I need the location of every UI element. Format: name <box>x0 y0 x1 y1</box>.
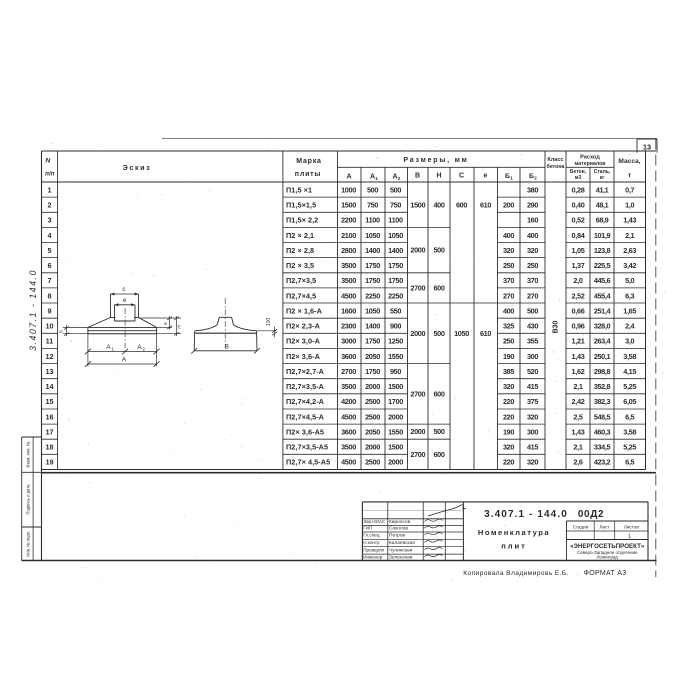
svg-text:Инв. № подл.: Инв. № подл. <box>26 531 31 557</box>
svg-text:П2× 2,3-А: П2× 2,3-А <box>286 322 321 331</box>
svg-text:1750: 1750 <box>388 261 403 270</box>
svg-text:1,21: 1,21 <box>571 337 584 346</box>
svg-text:270: 270 <box>503 291 514 300</box>
svg-text:Лист: Лист <box>600 525 611 530</box>
svg-text:4500: 4500 <box>341 291 356 300</box>
svg-text:1050: 1050 <box>454 329 469 338</box>
svg-text:600: 600 <box>433 284 444 293</box>
svg-text:328,0: 328,0 <box>594 322 611 331</box>
svg-text:Б: Б <box>163 322 168 325</box>
svg-text:270: 270 <box>527 291 538 300</box>
svg-text:500: 500 <box>433 329 444 338</box>
svg-text:Масса,: Масса, <box>618 158 640 165</box>
svg-text:3600: 3600 <box>341 352 356 361</box>
svg-text:0,96: 0,96 <box>571 322 584 331</box>
svg-text:3.407.1 - 144.0: 3.407.1 - 144.0 <box>28 269 38 351</box>
svg-text:6,05: 6,05 <box>623 397 636 406</box>
svg-text:500: 500 <box>433 427 444 436</box>
svg-text:2000: 2000 <box>388 458 403 467</box>
svg-text:П2,7×4,5: П2,7×4,5 <box>286 291 316 300</box>
svg-text:190: 190 <box>503 427 514 436</box>
svg-text:2050: 2050 <box>365 427 380 436</box>
svg-text:П2,7×3,5-А: П2,7×3,5-А <box>286 382 325 391</box>
svg-text:Соколов: Соколов <box>389 526 408 532</box>
svg-text:320: 320 <box>527 412 538 421</box>
svg-text:3000: 3000 <box>341 337 356 346</box>
svg-text:П2,7×3,5-А5: П2,7×3,5-А5 <box>286 443 328 452</box>
svg-text:520: 520 <box>527 367 538 376</box>
svg-text:750: 750 <box>390 201 401 210</box>
svg-text:1400: 1400 <box>388 246 403 255</box>
svg-text:320: 320 <box>527 246 538 255</box>
svg-text:1700: 1700 <box>388 397 403 406</box>
svg-text:19: 19 <box>45 458 53 467</box>
svg-text:А: А <box>346 174 351 181</box>
svg-text:3,0: 3,0 <box>625 337 634 346</box>
svg-text:2300: 2300 <box>341 322 356 331</box>
svg-text:17: 17 <box>45 427 53 436</box>
svg-text:610: 610 <box>480 201 491 210</box>
svg-text:2,42: 2,42 <box>571 397 584 406</box>
svg-text:плит: плит <box>501 542 526 551</box>
svg-text:П2,7×4,5-А: П2,7×4,5-А <box>286 412 325 421</box>
svg-text:материалов: материалов <box>575 161 606 167</box>
svg-text:Зеленская: Зеленская <box>389 554 413 560</box>
svg-text:385: 385 <box>503 367 514 376</box>
svg-text:3600: 3600 <box>341 427 356 436</box>
svg-text:1500: 1500 <box>388 443 403 452</box>
svg-text:16: 16 <box>45 412 53 421</box>
svg-text:1100: 1100 <box>388 216 403 225</box>
svg-text:123,8: 123,8 <box>594 246 611 255</box>
svg-text:8: 8 <box>47 291 51 300</box>
svg-text:500: 500 <box>367 185 378 194</box>
svg-text:423,2: 423,2 <box>594 458 611 467</box>
svg-text:455,4: 455,4 <box>594 291 612 300</box>
svg-text:Класс: Класс <box>547 157 563 163</box>
svg-text:18: 18 <box>45 443 53 452</box>
svg-text:298,8: 298,8 <box>594 367 611 376</box>
svg-text:00Д2: 00Д2 <box>578 509 604 520</box>
svg-text:11: 11 <box>46 337 54 346</box>
svg-text:4500: 4500 <box>341 458 356 467</box>
svg-text:П2 × 1,6-А: П2 × 1,6-А <box>286 306 323 315</box>
svg-text:250: 250 <box>503 337 514 346</box>
svg-text:3: 3 <box>47 216 51 225</box>
svg-text:2000: 2000 <box>410 246 425 255</box>
svg-text:900: 900 <box>390 322 401 331</box>
svg-text:П2 × 2,8: П2 × 2,8 <box>286 246 314 255</box>
svg-text:1750: 1750 <box>388 276 403 285</box>
svg-text:п/п: п/п <box>45 171 54 178</box>
svg-text:4200: 4200 <box>341 397 356 406</box>
svg-text:220: 220 <box>503 397 514 406</box>
svg-text:Копировала Владимировь Е.Б.: Копировала Владимировь Е.Б. <box>463 570 569 577</box>
svg-text:1: 1 <box>628 534 631 540</box>
svg-text:2,52: 2,52 <box>571 291 584 300</box>
svg-text:В30: В30 <box>553 320 560 333</box>
svg-text:600: 600 <box>433 389 444 398</box>
svg-text:1750: 1750 <box>365 337 380 346</box>
svg-text:400: 400 <box>527 231 538 240</box>
svg-text:Ленинград: Ленинград <box>597 555 619 560</box>
svg-text:750: 750 <box>367 201 378 210</box>
svg-text:3500: 3500 <box>341 443 356 452</box>
svg-text:3,42: 3,42 <box>623 261 636 270</box>
svg-text:Н: Н <box>436 173 441 180</box>
svg-text:1400: 1400 <box>365 322 380 331</box>
svg-text:12: 12 <box>45 352 53 361</box>
svg-text:5: 5 <box>47 246 51 255</box>
svg-text:2050: 2050 <box>365 352 380 361</box>
svg-text:1: 1 <box>47 185 51 194</box>
svg-text:3500: 3500 <box>341 276 356 285</box>
svg-text:0,52: 0,52 <box>571 216 584 225</box>
svg-text:7: 7 <box>47 276 51 285</box>
svg-text:П2 × 2,1: П2 × 2,1 <box>286 231 314 240</box>
svg-text:2,5: 2,5 <box>573 412 582 421</box>
svg-text:250: 250 <box>527 261 538 270</box>
svg-text:300: 300 <box>527 427 538 436</box>
svg-text:251,4: 251,4 <box>594 306 612 315</box>
svg-text:13: 13 <box>45 367 53 376</box>
svg-text:1550: 1550 <box>388 427 403 436</box>
svg-text:Эскиз: Эскиз <box>123 163 152 172</box>
svg-text:1100: 1100 <box>365 216 380 225</box>
svg-text:950: 950 <box>390 367 401 376</box>
svg-text:1,43: 1,43 <box>623 216 636 225</box>
svg-text:100: 100 <box>266 318 272 327</box>
svg-text:325: 325 <box>503 322 514 331</box>
svg-text:Листов: Листов <box>624 525 639 530</box>
svg-text:15: 15 <box>45 397 53 406</box>
svg-text:415: 415 <box>527 443 538 452</box>
svg-text:1,05: 1,05 <box>571 246 584 255</box>
svg-text:2200: 2200 <box>341 216 356 225</box>
svg-text:2,4: 2,4 <box>625 322 635 331</box>
svg-text:2100: 2100 <box>341 231 356 240</box>
svg-text:Калаевская: Калаевская <box>389 540 415 546</box>
svg-text:Проверил: Проверил <box>363 547 384 552</box>
svg-text:2: 2 <box>534 176 537 181</box>
svg-text:415: 415 <box>527 382 538 391</box>
svg-text:плиты: плиты <box>295 171 321 178</box>
svg-text:320: 320 <box>503 246 514 255</box>
svg-text:500: 500 <box>390 185 401 194</box>
svg-text:2000: 2000 <box>388 412 403 421</box>
svg-text:Петров: Петров <box>389 533 405 539</box>
svg-text:Взам. инв. №: Взам. инв. № <box>26 441 31 467</box>
svg-text:Б: Б <box>59 330 64 333</box>
svg-text:9: 9 <box>47 306 51 315</box>
svg-text:610: 610 <box>480 329 491 338</box>
svg-text:548,5: 548,5 <box>594 412 611 421</box>
svg-text:бетона: бетона <box>547 163 565 170</box>
svg-text:382,3: 382,3 <box>594 397 611 406</box>
svg-text:Расход: Расход <box>580 155 600 161</box>
svg-text:400: 400 <box>503 231 514 240</box>
svg-text:400: 400 <box>503 306 514 315</box>
svg-text:1250: 1250 <box>388 337 403 346</box>
svg-text:445,6: 445,6 <box>594 276 611 285</box>
svg-text:4,15: 4,15 <box>623 367 636 376</box>
svg-text:В: В <box>225 343 229 350</box>
svg-text:2: 2 <box>398 176 401 181</box>
svg-text:Кирносов: Кирносов <box>389 519 411 525</box>
svg-text:П2× 3,6-А5: П2× 3,6-А5 <box>286 427 324 436</box>
svg-text:1,62: 1,62 <box>571 367 584 376</box>
svg-text:П2× 3,6-А: П2× 3,6-А <box>286 352 321 361</box>
svg-text:2250: 2250 <box>365 291 380 300</box>
svg-text:500: 500 <box>527 306 538 315</box>
svg-text:1600: 1600 <box>341 306 356 315</box>
svg-text:370: 370 <box>527 276 538 285</box>
svg-text:400: 400 <box>433 200 444 209</box>
svg-text:48,1: 48,1 <box>596 201 609 210</box>
svg-text:10: 10 <box>45 322 53 331</box>
svg-text:101,9: 101,9 <box>594 231 611 240</box>
svg-text:1: 1 <box>375 176 378 181</box>
svg-text:Номенклатура: Номенклатура <box>478 528 550 537</box>
svg-text:Чучинская: Чучинская <box>389 547 413 553</box>
svg-text:Гл.спец.: Гл.спец. <box>363 533 380 538</box>
svg-text:П1,5× 2,2: П1,5× 2,2 <box>286 216 318 225</box>
svg-text:190: 190 <box>503 352 514 361</box>
svg-text:370: 370 <box>503 276 514 285</box>
svg-text:1,0: 1,0 <box>625 201 634 210</box>
svg-text:2,0: 2,0 <box>573 276 582 285</box>
svg-text:320: 320 <box>527 458 538 467</box>
svg-text:2,1: 2,1 <box>573 443 582 452</box>
svg-text:380: 380 <box>527 185 538 194</box>
svg-text:1,37: 1,37 <box>571 261 584 270</box>
svg-text:1: 1 <box>510 176 513 181</box>
svg-text:1500: 1500 <box>341 201 356 210</box>
svg-text:0,66: 0,66 <box>571 306 584 315</box>
svg-text:2,1: 2,1 <box>573 382 582 391</box>
svg-text:2000: 2000 <box>365 443 380 452</box>
svg-text:220: 220 <box>503 458 514 467</box>
svg-text:1050: 1050 <box>388 231 403 240</box>
svg-text:3.407.1 - 144.0: 3.407.1 - 144.0 <box>484 509 568 520</box>
svg-text:1750: 1750 <box>365 367 380 376</box>
svg-text:290: 290 <box>527 201 538 210</box>
svg-text:6,3: 6,3 <box>625 291 634 300</box>
svg-text:300: 300 <box>527 352 538 361</box>
svg-text:Инженер: Инженер <box>363 554 383 559</box>
svg-text:2500: 2500 <box>365 458 380 467</box>
svg-text:П2× 3,0-А: П2× 3,0-А <box>286 337 321 346</box>
svg-text:2000: 2000 <box>410 329 425 338</box>
svg-text:550: 550 <box>390 306 401 315</box>
svg-text:68,9: 68,9 <box>596 216 609 225</box>
svg-text:200: 200 <box>503 201 514 210</box>
svg-text:1750: 1750 <box>365 261 380 270</box>
svg-text:375: 375 <box>527 397 538 406</box>
svg-text:Зав.НИАС: Зав.НИАС <box>363 519 386 524</box>
svg-text:П1,5×1,5: П1,5×1,5 <box>286 201 316 210</box>
svg-text:352,8: 352,8 <box>594 382 611 391</box>
svg-text:В: В <box>415 173 420 180</box>
svg-text:Подпись и дата: Подпись и дата <box>26 484 31 515</box>
svg-text:Н.контр: Н.контр <box>363 540 380 545</box>
svg-text:500: 500 <box>433 246 444 255</box>
svg-text:5,25: 5,25 <box>623 382 636 391</box>
svg-text:ГИП: ГИП <box>363 526 372 531</box>
svg-text:5,0: 5,0 <box>625 276 634 285</box>
svg-text:263,4: 263,4 <box>594 337 612 346</box>
svg-text:2700: 2700 <box>341 367 356 376</box>
svg-text:1550: 1550 <box>388 352 403 361</box>
svg-text:кг: кг <box>600 175 605 181</box>
svg-text:П1,5 ×1: П1,5 ×1 <box>286 185 312 194</box>
svg-text:1750: 1750 <box>365 276 380 285</box>
svg-text:160: 160 <box>527 216 538 225</box>
svg-text:334,5: 334,5 <box>594 443 611 452</box>
svg-text:13: 13 <box>643 143 651 152</box>
svg-text:1050: 1050 <box>365 231 380 240</box>
svg-text:1400: 1400 <box>365 246 380 255</box>
svg-text:2700: 2700 <box>410 389 425 398</box>
svg-text:С: С <box>459 173 464 180</box>
svg-text:2,1: 2,1 <box>625 231 634 240</box>
svg-text:355: 355 <box>527 337 538 346</box>
svg-text:0,40: 0,40 <box>571 201 584 210</box>
svg-text:2800: 2800 <box>341 246 356 255</box>
svg-text:6,5: 6,5 <box>625 458 634 467</box>
svg-text:250: 250 <box>503 261 514 270</box>
svg-text:0,84: 0,84 <box>571 231 585 240</box>
svg-text:600: 600 <box>456 201 467 210</box>
svg-text:П2,7×3,5: П2,7×3,5 <box>286 276 316 285</box>
svg-text:1500: 1500 <box>410 200 425 209</box>
svg-text:ФОРМАТ А3: ФОРМАТ А3 <box>584 570 627 577</box>
svg-text:2: 2 <box>47 201 51 210</box>
svg-text:3500: 3500 <box>341 261 356 270</box>
svg-text:430: 430 <box>527 322 538 331</box>
svg-text:е: е <box>484 173 488 180</box>
svg-text:2,6: 2,6 <box>573 458 582 467</box>
svg-text:14: 14 <box>45 382 54 391</box>
svg-text:0,28: 0,28 <box>571 185 584 194</box>
svg-text:1000: 1000 <box>341 185 356 194</box>
svg-text:«ЭНЕРГОСЕТЬПРОЕКТ»: «ЭНЕРГОСЕТЬПРОЕКТ» <box>570 543 645 550</box>
svg-text:1,43: 1,43 <box>571 352 584 361</box>
svg-text:250,1: 250,1 <box>594 352 611 361</box>
svg-text:6,5: 6,5 <box>625 412 634 421</box>
svg-text:6: 6 <box>47 261 51 270</box>
svg-text:Стадия: Стадия <box>573 525 589 530</box>
svg-text:3,58: 3,58 <box>623 352 636 361</box>
svg-text:600: 600 <box>433 450 444 459</box>
svg-text:Марка: Марка <box>296 158 321 165</box>
svg-text:2000: 2000 <box>410 427 425 436</box>
svg-text:320: 320 <box>503 443 514 452</box>
svg-text:5,25: 5,25 <box>623 443 636 452</box>
svg-text:2,63: 2,63 <box>623 246 636 255</box>
svg-text:П2,7× 4,5-А5: П2,7× 4,5-А5 <box>286 458 330 467</box>
svg-text:3,58: 3,58 <box>623 427 636 436</box>
svg-text:А: А <box>122 356 127 363</box>
svg-text:м3: м3 <box>575 175 582 181</box>
svg-text:П2,7×4,2-А: П2,7×4,2-А <box>286 397 325 406</box>
svg-text:225,5: 225,5 <box>594 261 611 270</box>
svg-text:2500: 2500 <box>365 397 380 406</box>
svg-text:1,65: 1,65 <box>623 306 636 315</box>
svg-text:1,43: 1,43 <box>571 427 584 436</box>
svg-text:Размеры, мм: Размеры, мм <box>403 157 468 164</box>
svg-text:4500: 4500 <box>341 412 356 421</box>
svg-text:320: 320 <box>503 382 514 391</box>
svg-text:2700: 2700 <box>410 284 425 293</box>
svg-text:2250: 2250 <box>388 291 403 300</box>
svg-text:41,1: 41,1 <box>596 185 609 194</box>
svg-text:2700: 2700 <box>410 450 425 459</box>
svg-text:3500: 3500 <box>341 382 356 391</box>
svg-text:2000: 2000 <box>365 382 380 391</box>
svg-text:2500: 2500 <box>365 412 380 421</box>
svg-text:1500: 1500 <box>388 382 403 391</box>
svg-text:460,3: 460,3 <box>594 427 611 436</box>
svg-text:Н: Н <box>177 325 182 328</box>
